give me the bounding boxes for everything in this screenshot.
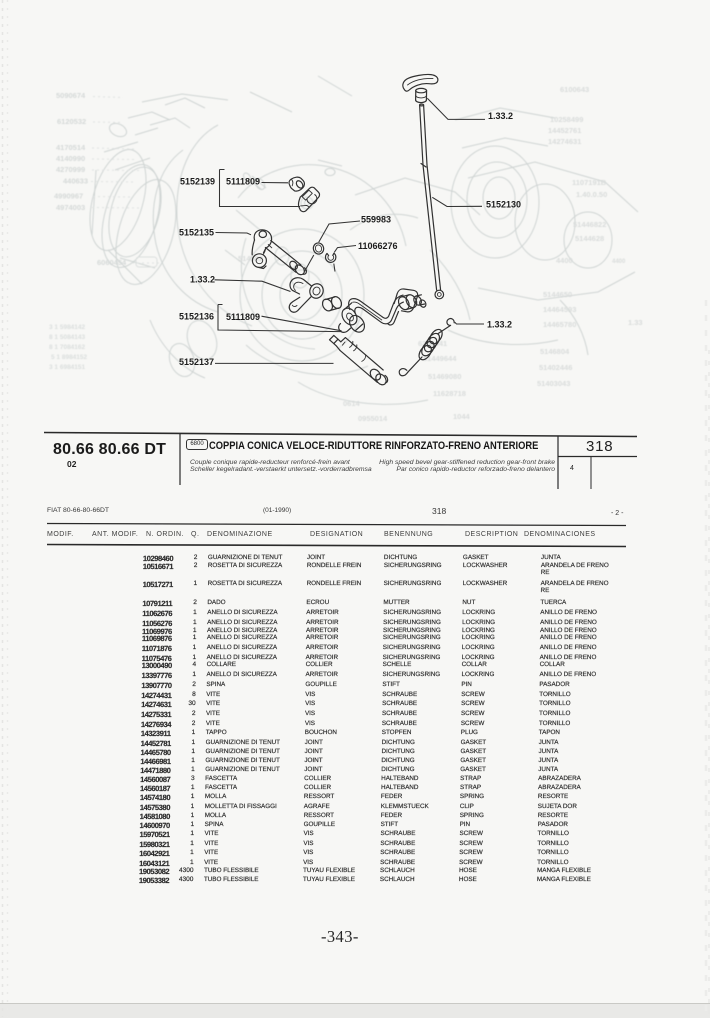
svg-text:4400: 4400 xyxy=(556,256,573,265)
svg-text:11628718: 11628718 xyxy=(433,389,466,398)
svg-text:4170514: 4170514 xyxy=(56,143,86,152)
svg-text:0614: 0614 xyxy=(343,399,361,408)
svg-text:11066276: 11066276 xyxy=(358,241,398,251)
svg-text:5152130: 5152130 xyxy=(486,200,521,210)
svg-text:14274631: 14274631 xyxy=(548,137,581,146)
svg-text:51469080: 51469080 xyxy=(428,372,461,381)
svg-text:4400: 4400 xyxy=(612,259,626,265)
svg-text:5144650: 5144650 xyxy=(543,290,572,299)
svg-text:1.40.0.50: 1.40.0.50 xyxy=(576,190,607,199)
svg-text:1.33.2: 1.33.2 xyxy=(488,111,513,121)
svg-text:1.33.2: 1.33.2 xyxy=(487,320,512,330)
svg-text:10258499: 10258499 xyxy=(550,115,583,124)
svg-text:5111809: 5111809 xyxy=(226,177,260,187)
svg-text:5152136: 5152136 xyxy=(179,312,214,322)
svg-text:6060454: 6060454 xyxy=(97,258,127,267)
svg-text:514682: 514682 xyxy=(238,254,263,263)
svg-text:1.33: 1.33 xyxy=(628,318,643,327)
svg-text:5090674: 5090674 xyxy=(56,91,86,100)
svg-text:5152139: 5152139 xyxy=(180,177,215,187)
svg-text:1.33.2: 1.33.2 xyxy=(190,275,215,285)
svg-text:4974003: 4974003 xyxy=(56,203,85,212)
svg-text:4270999: 4270999 xyxy=(56,165,85,174)
svg-text:8 1 5084143: 8 1 5084143 xyxy=(49,334,86,341)
svg-text:51446822: 51446822 xyxy=(573,220,606,229)
svg-text:5146804: 5146804 xyxy=(540,347,570,356)
svg-text:5152137: 5152137 xyxy=(179,357,214,367)
svg-text:4990967: 4990967 xyxy=(54,192,83,201)
svg-text:8 1 7084162: 8 1 7084162 xyxy=(49,344,86,351)
svg-text:0955014: 0955014 xyxy=(358,414,388,423)
svg-text:51403043: 51403043 xyxy=(537,379,570,388)
svg-text:5 1 8984152: 5 1 8984152 xyxy=(51,354,88,361)
svg-text:51402446: 51402446 xyxy=(539,363,572,372)
svg-text:1107191B: 1107191B xyxy=(572,178,607,187)
svg-text:14452761: 14452761 xyxy=(548,126,581,135)
svg-text:440633: 440633 xyxy=(63,177,88,186)
svg-text:14464593: 14464593 xyxy=(543,305,576,314)
svg-text:4140990: 4140990 xyxy=(56,154,85,163)
svg-text:6100643: 6100643 xyxy=(560,85,589,94)
svg-text:14465780: 14465780 xyxy=(543,320,576,329)
svg-text:5144628: 5144628 xyxy=(575,234,604,243)
svg-text:5152135: 5152135 xyxy=(179,228,214,238)
svg-text:1044: 1044 xyxy=(453,412,471,421)
svg-text:6120532: 6120532 xyxy=(57,117,86,126)
svg-text:559983: 559983 xyxy=(361,215,391,225)
svg-text:3 1 5984142: 3 1 5984142 xyxy=(49,324,86,331)
svg-text:5111809: 5111809 xyxy=(226,312,260,322)
svg-text:3 1 6984151: 3 1 6984151 xyxy=(49,364,86,371)
